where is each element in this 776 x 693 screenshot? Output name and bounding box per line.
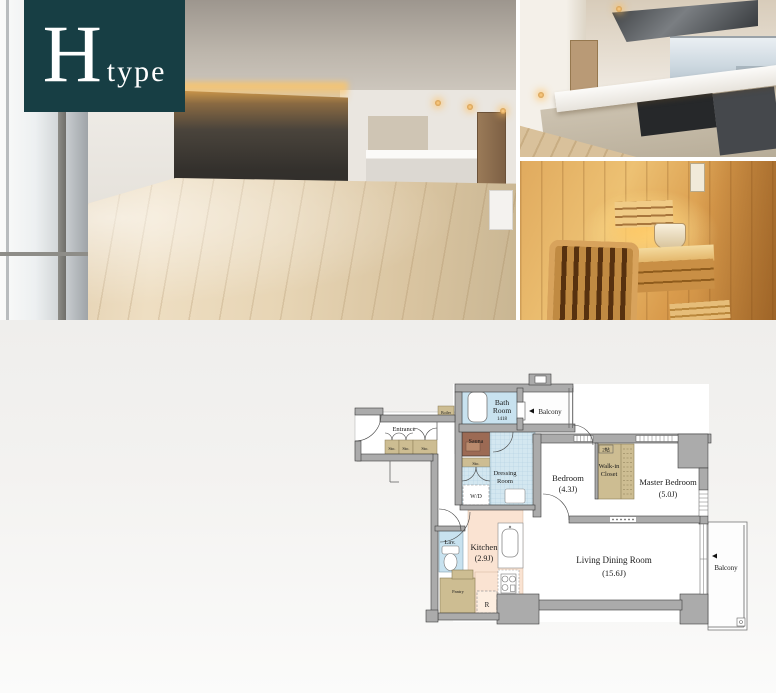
sauna-bucket xyxy=(654,223,686,249)
refrigerator-label: R xyxy=(485,601,490,609)
window-mullion xyxy=(6,0,9,320)
sink-icon xyxy=(502,529,518,557)
sauna-corner-shadow xyxy=(696,161,776,320)
bath-label-2: Room xyxy=(493,406,512,415)
toilet-bowl-icon xyxy=(444,554,457,571)
walk-in-closet-label-2: Closet xyxy=(601,471,618,478)
living-dining-size-label: (15.6J) xyxy=(602,568,626,578)
kitchen-label: Kitchen xyxy=(471,542,499,552)
type-letter: H xyxy=(43,8,102,99)
walk-in-closet-size-label: 2帖 xyxy=(602,447,610,454)
wall-duct xyxy=(535,376,546,383)
storage-2-label: Sto. xyxy=(402,446,409,451)
downlight xyxy=(435,100,441,106)
type-suffix: type xyxy=(107,55,167,88)
bathtub-icon xyxy=(468,392,487,422)
sauna-storage-label: Sto. xyxy=(472,461,479,466)
master-bedroom-size-label: (5.0J) xyxy=(659,490,678,499)
sauna-label: Sauna xyxy=(469,439,484,445)
walk-in-closet-label-1: Walk-in xyxy=(599,463,621,470)
kitchen-photo xyxy=(520,0,776,157)
downlight xyxy=(500,108,506,114)
opening-dashes xyxy=(610,517,636,522)
washer-dryer-label: W/D xyxy=(470,494,482,500)
sauna-step xyxy=(669,300,730,320)
floorplan-section: Bath Room 1418 Balcony Boiler Sauna Sto.… xyxy=(0,320,776,693)
dressing-label-2: Room xyxy=(497,478,513,485)
sauna-control-panel xyxy=(690,163,705,192)
window-sill xyxy=(0,252,88,256)
balcony-door xyxy=(517,402,525,420)
downlight xyxy=(538,92,544,98)
dressing-label-1: Dressing xyxy=(493,470,517,477)
living-dining-label: Living Dining Room xyxy=(576,555,652,565)
master-bedroom-label: Master Bedroom xyxy=(639,477,697,487)
boiler-label: Boiler xyxy=(441,410,452,415)
cabinet-dark-panel xyxy=(712,86,776,155)
heater-guard xyxy=(547,239,640,320)
toilet-tank-icon xyxy=(442,546,459,554)
bath-size-label: 1418 xyxy=(497,417,508,422)
vanity-icon xyxy=(505,489,525,503)
appliance-box xyxy=(489,190,513,230)
floorplan: Bath Room 1418 Balcony Boiler Sauna Sto.… xyxy=(347,372,767,662)
type-badge: Htype xyxy=(24,0,185,112)
downlight xyxy=(467,104,473,110)
pantry-area xyxy=(440,578,475,613)
balcony-top-label: Balcony xyxy=(538,408,562,416)
balcony-drain xyxy=(737,618,745,626)
pantry-label: Pantry xyxy=(452,589,464,594)
bedroom-label: Bedroom xyxy=(552,473,584,483)
bedroom-size-label: (4.3J) xyxy=(559,485,578,494)
page: Htype xyxy=(0,0,776,693)
storage-3-label: Sto. xyxy=(421,446,428,451)
pantry-notch xyxy=(452,570,473,579)
lavatory-label: Lav. xyxy=(444,539,456,546)
faucet-icon xyxy=(509,526,511,528)
entrance-label: Entrance xyxy=(392,426,415,433)
sauna-photo xyxy=(520,161,776,320)
balcony-right-label: Balcony xyxy=(714,564,738,572)
downlight xyxy=(616,6,622,12)
kitchen-size-label: (2.9J) xyxy=(475,554,494,563)
storage-1-label: Sto. xyxy=(388,446,395,451)
